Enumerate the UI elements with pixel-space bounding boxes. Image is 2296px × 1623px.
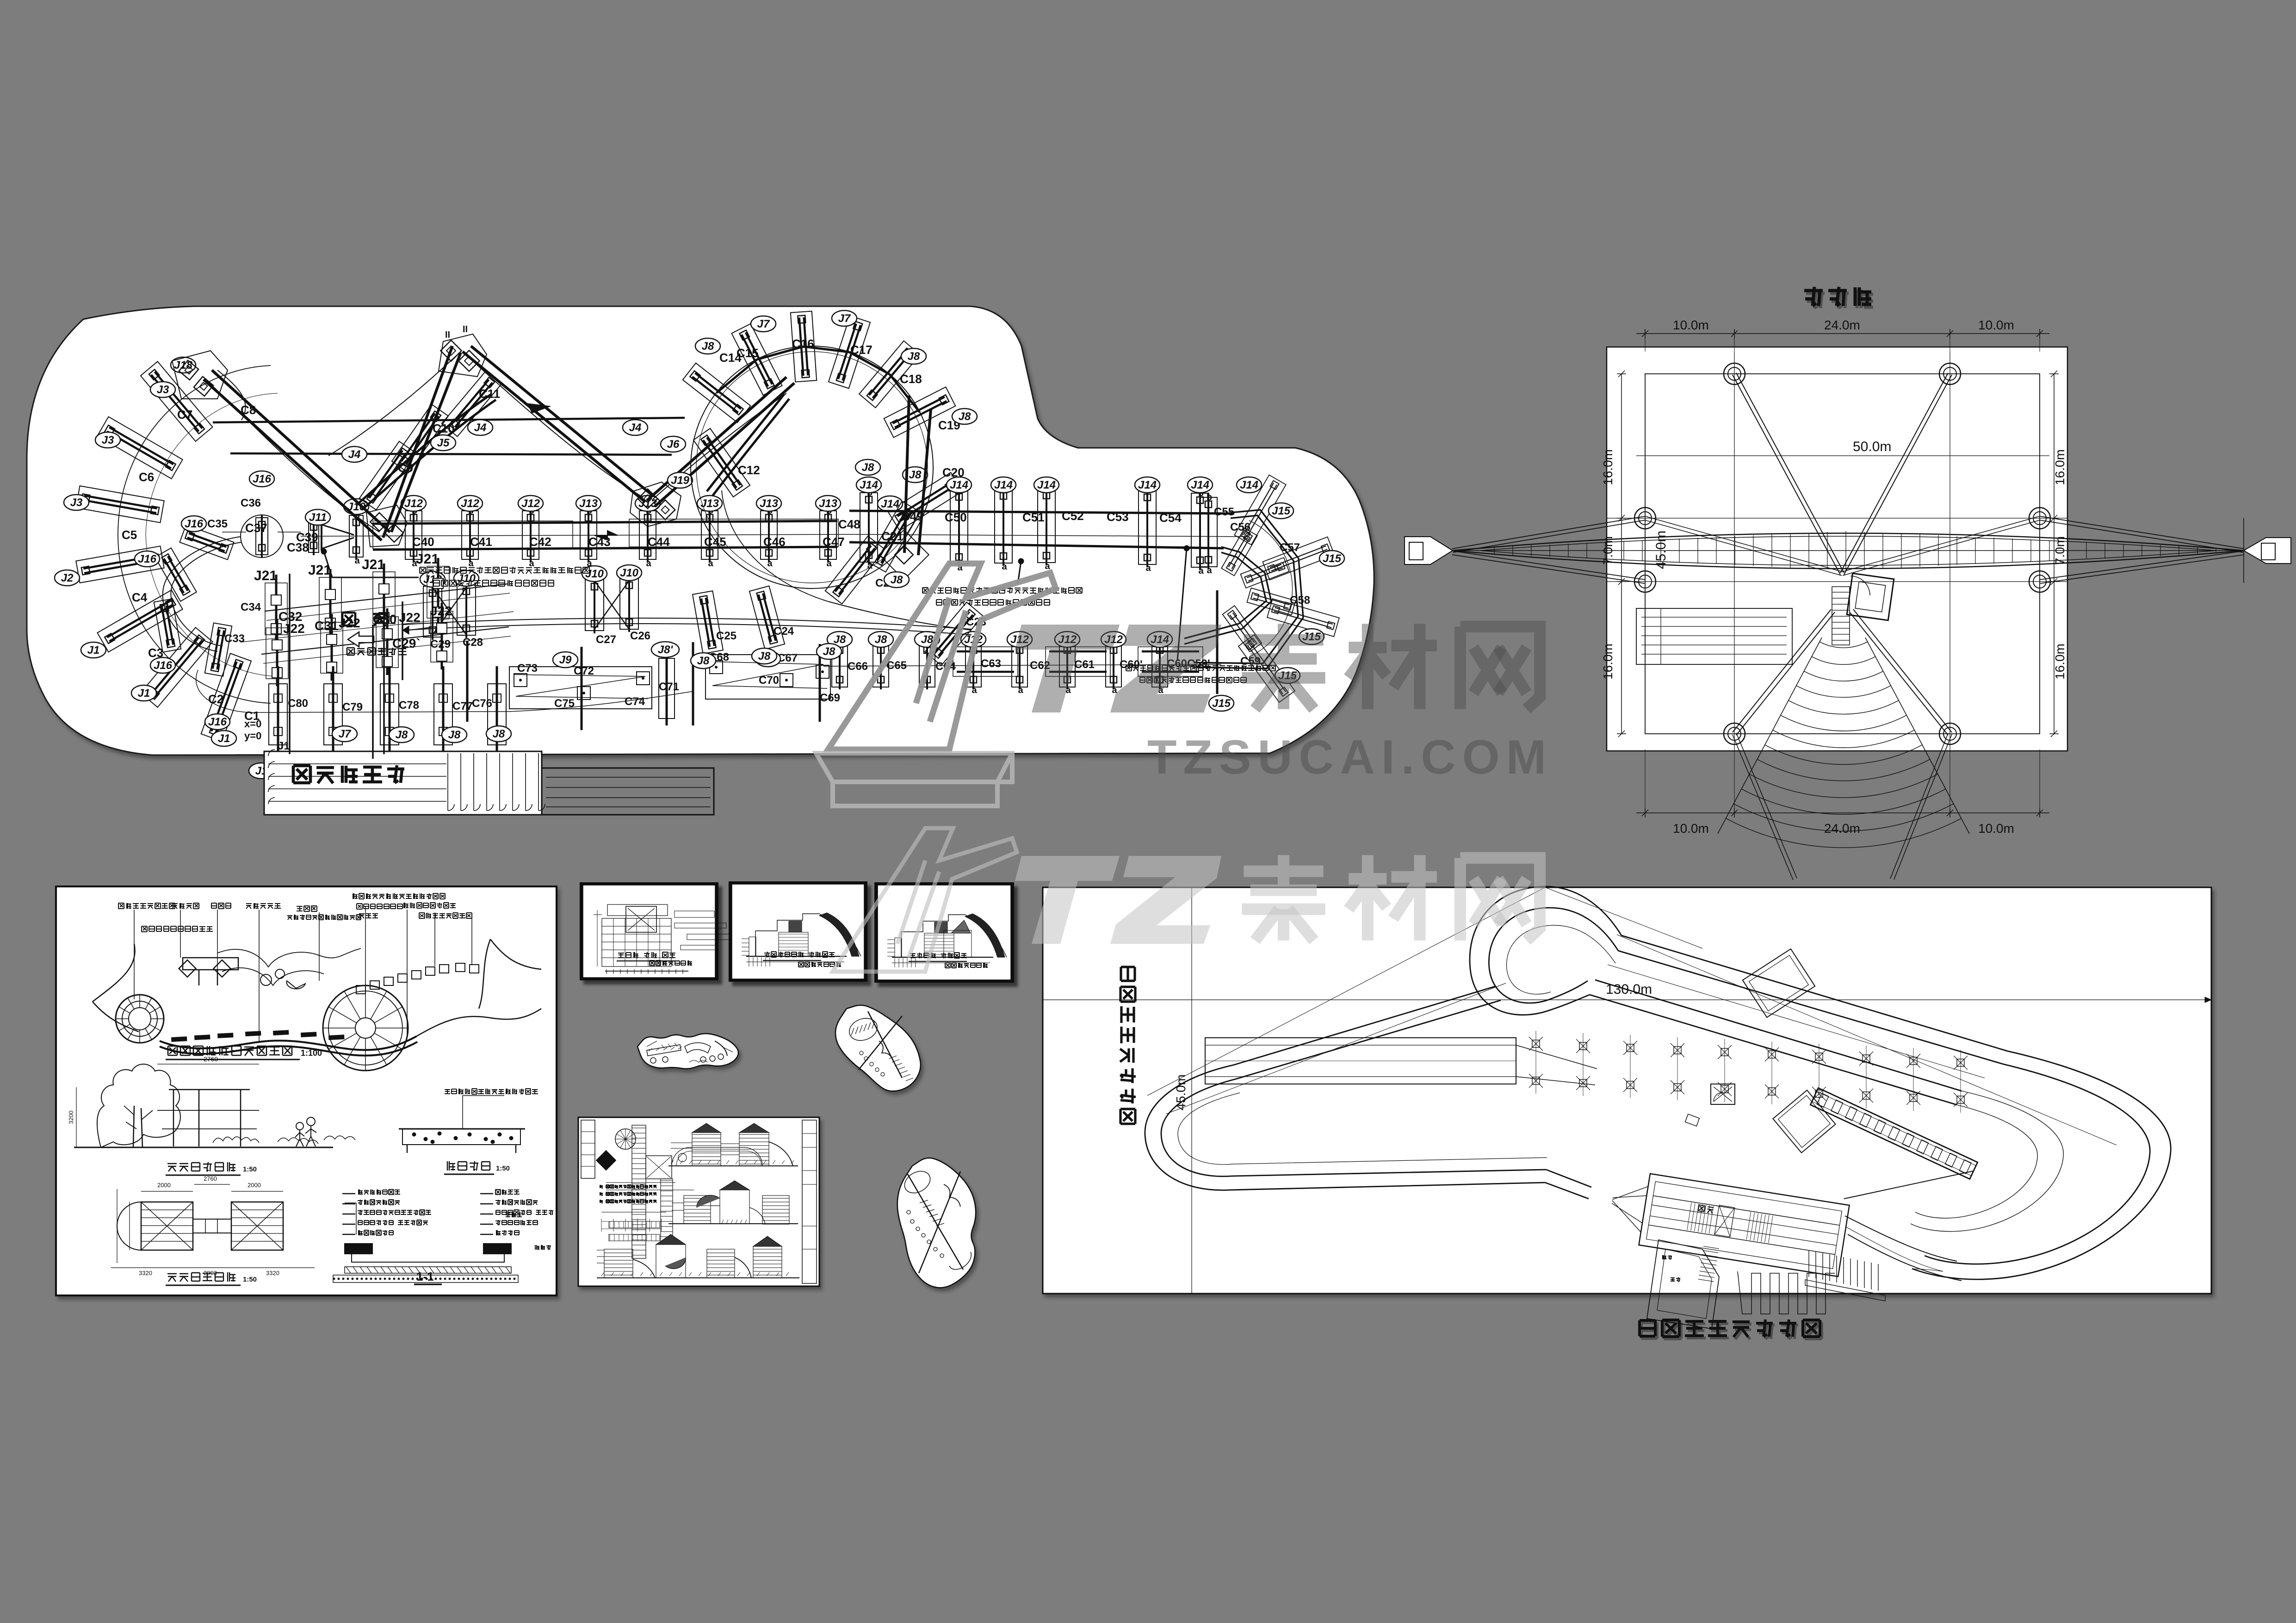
svg-text:J8: J8 (862, 461, 874, 474)
svg-text:C6: C6 (139, 470, 154, 484)
svg-text:J8: J8 (697, 655, 710, 667)
svg-text:J8: J8 (891, 574, 903, 586)
svg-text:16.0m: 16.0m (2053, 644, 2067, 680)
svg-text:J10: J10 (620, 567, 639, 579)
svg-text:C52: C52 (1062, 509, 1084, 523)
svg-text:J14: J14 (950, 479, 968, 491)
svg-text:C31: C31 (315, 619, 338, 633)
svg-text:C56: C56 (1230, 521, 1250, 533)
svg-text:J19: J19 (671, 474, 690, 487)
svg-text:2760: 2760 (204, 1055, 218, 1063)
svg-text:J8: J8 (909, 469, 922, 481)
svg-text:b: b (1207, 492, 1212, 502)
svg-text:J4: J4 (474, 421, 487, 434)
svg-text:10.0m: 10.0m (1673, 318, 1709, 332)
svg-text:16.0m: 16.0m (2053, 449, 2067, 485)
svg-text:C47: C47 (823, 535, 845, 549)
svg-text:C36: C36 (241, 497, 261, 509)
svg-text:C35: C35 (207, 518, 228, 530)
svg-text:II: II (463, 324, 468, 335)
svg-text:J8: J8 (875, 633, 887, 646)
svg-text:J12: J12 (461, 497, 480, 510)
svg-text:C63: C63 (981, 657, 1001, 670)
svg-text:C58: C58 (1290, 594, 1310, 607)
svg-text:C40: C40 (412, 535, 434, 549)
svg-text:a: a (1002, 562, 1007, 572)
svg-text:C79: C79 (342, 701, 363, 713)
svg-text:C27: C27 (596, 633, 616, 646)
svg-text:C44: C44 (648, 535, 670, 549)
svg-text:J12: J12 (521, 497, 540, 510)
svg-text:a: a (1018, 685, 1023, 695)
svg-text:C9: C9 (398, 461, 413, 475)
svg-text:a: a (972, 685, 977, 695)
svg-text:C69: C69 (820, 692, 840, 704)
svg-text:C76: C76 (472, 697, 492, 710)
svg-text:C54: C54 (1159, 511, 1182, 525)
svg-text:C16: C16 (792, 337, 814, 351)
svg-text:C51: C51 (1022, 510, 1045, 524)
svg-text:J3: J3 (70, 496, 83, 509)
svg-text:J12: J12 (404, 497, 423, 510)
svg-text:10.0m: 10.0m (1978, 821, 2014, 836)
svg-text:J8: J8 (702, 340, 714, 353)
svg-text:10.0m: 10.0m (1673, 821, 1709, 836)
svg-text:J14: J14 (881, 498, 899, 510)
svg-text:1:50: 1:50 (243, 1165, 257, 1173)
svg-text:J16: J16 (138, 553, 157, 565)
svg-text:16.0m: 16.0m (1601, 449, 1615, 485)
svg-text:C28: C28 (463, 636, 483, 649)
svg-text:10.0m: 10.0m (1978, 318, 2014, 332)
svg-text:C33: C33 (224, 632, 245, 645)
svg-text:1-1: 1-1 (416, 1270, 434, 1283)
svg-text:a: a (468, 558, 474, 569)
svg-text:a: a (529, 558, 534, 569)
svg-text:J16: J16 (154, 659, 173, 672)
svg-text:C60': C60' (1120, 658, 1143, 671)
svg-text:C2: C2 (208, 692, 223, 706)
svg-text:C26: C26 (630, 630, 650, 642)
svg-text:J14: J14 (1037, 479, 1056, 491)
svg-text:II: II (445, 330, 450, 340)
svg-text:J22: J22 (430, 604, 452, 618)
svg-text:a: a (1145, 563, 1151, 573)
svg-text:C18: C18 (900, 372, 922, 386)
svg-text:C15: C15 (736, 346, 759, 360)
svg-text:C70: C70 (759, 674, 779, 687)
svg-text:C53: C53 (1107, 510, 1129, 524)
svg-text:J8': J8' (658, 644, 674, 656)
svg-text:24.0m: 24.0m (1824, 318, 1860, 332)
svg-text:J16: J16 (253, 473, 272, 485)
svg-text:J14: J14 (994, 479, 1013, 491)
svg-text:3320: 3320 (266, 1270, 279, 1276)
svg-text:1:100: 1:100 (301, 1048, 322, 1058)
svg-text:C50: C50 (945, 510, 967, 524)
svg-text:C41: C41 (470, 535, 492, 549)
svg-text:C46: C46 (763, 535, 786, 549)
svg-text:C57: C57 (1280, 541, 1300, 554)
svg-text:a: a (1198, 566, 1204, 576)
svg-text:J9: J9 (559, 654, 572, 666)
svg-text:J11: J11 (309, 511, 327, 524)
svg-text:J7: J7 (838, 312, 851, 325)
svg-text:J8: J8 (493, 728, 505, 740)
svg-text:C17: C17 (850, 343, 873, 357)
svg-text:J15: J15 (1323, 552, 1342, 565)
svg-text:J8: J8 (908, 350, 920, 363)
svg-text:J5: J5 (437, 437, 450, 449)
svg-text:a: a (646, 558, 651, 569)
svg-text:C65: C65 (886, 659, 907, 672)
svg-text:16.0m: 16.0m (1601, 644, 1615, 680)
svg-text:3200: 3200 (68, 1111, 74, 1124)
svg-text:J8: J8 (959, 410, 971, 423)
svg-text:J14: J14 (860, 479, 878, 491)
svg-text:C5: C5 (122, 528, 137, 542)
svg-text:J8: J8 (758, 650, 771, 663)
svg-text:a: a (354, 556, 360, 566)
svg-text:J7: J7 (757, 318, 770, 330)
svg-text:J1: J1 (138, 687, 150, 700)
svg-text:C71: C71 (659, 681, 679, 693)
svg-text:a: a (767, 558, 773, 569)
svg-text:C34: C34 (241, 601, 261, 613)
svg-text:J13: J13 (700, 497, 719, 510)
svg-text:45.0m: 45.0m (1174, 1074, 1188, 1110)
svg-text:J14: J14 (1240, 479, 1258, 491)
svg-text:1:50: 1:50 (243, 1276, 257, 1283)
svg-text:J1: J1 (87, 644, 100, 657)
svg-text:J4: J4 (629, 421, 642, 434)
svg-text:C77: C77 (452, 700, 473, 712)
svg-text:1:50: 1:50 (496, 1165, 510, 1172)
svg-text:a: a (708, 558, 713, 569)
svg-text:C66: C66 (848, 660, 868, 673)
svg-text:a: a (1207, 565, 1212, 576)
svg-text:J15: J15 (1212, 697, 1231, 710)
svg-text:J21: J21 (416, 551, 439, 567)
svg-text:C61: C61 (1074, 658, 1095, 671)
svg-text:J13: J13 (819, 497, 838, 510)
svg-text:3320: 3320 (139, 1270, 152, 1276)
svg-text:C29`: C29` (392, 636, 421, 650)
svg-text:a: a (826, 558, 832, 569)
svg-text:x=0: x=0 (244, 718, 261, 730)
svg-text:J8: J8 (823, 645, 835, 658)
svg-text:TZSUCAI.COM: TZSUCAI.COM (1147, 731, 1553, 784)
svg-text:C80: C80 (288, 697, 308, 710)
svg-text:J13: J13 (760, 497, 779, 510)
svg-text:J16: J16 (208, 716, 227, 728)
svg-text:J10: J10 (585, 568, 604, 580)
svg-text:J21: J21 (254, 568, 277, 583)
svg-text:C72: C72 (574, 665, 594, 677)
svg-text:C11: C11 (479, 387, 500, 401)
svg-text:J3: J3 (157, 384, 169, 396)
svg-text:50.0m: 50.0m (1853, 439, 1891, 454)
svg-text:J16: J16 (185, 518, 204, 530)
svg-text:J1: J1 (218, 732, 230, 745)
svg-text:C74: C74 (625, 695, 645, 708)
svg-text:J7: J7 (339, 728, 352, 740)
svg-text:J15: J15 (1272, 505, 1291, 517)
svg-text:C24: C24 (774, 625, 794, 638)
svg-text:C7: C7 (177, 408, 192, 421)
svg-text:J8: J8 (396, 729, 408, 741)
svg-text:C12: C12 (738, 463, 760, 477)
svg-text:2760: 2760 (204, 1175, 217, 1182)
svg-text:2000: 2000 (248, 1182, 261, 1189)
svg-text:C55: C55 (1214, 506, 1234, 518)
svg-text:2000: 2000 (157, 1182, 171, 1189)
svg-text:J8: J8 (448, 729, 461, 741)
svg-text:J4: J4 (348, 448, 361, 461)
svg-text:C29: C29 (430, 638, 451, 650)
svg-text:C45: C45 (704, 535, 726, 549)
svg-text:J22: J22 (283, 621, 305, 636)
svg-text:24.0m: 24.0m (1824, 821, 1860, 836)
svg-text:C8: C8 (241, 403, 256, 417)
svg-text:J2: J2 (61, 572, 74, 584)
svg-text:J1: J1 (278, 740, 290, 752)
svg-text:J8: J8 (834, 633, 846, 646)
svg-text:y=0: y=0 (244, 730, 261, 742)
svg-text:C42: C42 (529, 535, 551, 549)
svg-text:C78: C78 (399, 699, 419, 712)
svg-text:C73: C73 (517, 662, 538, 675)
svg-text:J21: J21 (362, 557, 385, 572)
svg-text:J14: J14 (1191, 479, 1209, 491)
svg-text:C48: C48 (838, 517, 860, 531)
svg-text:J6: J6 (667, 438, 680, 451)
svg-text:J3: J3 (102, 434, 114, 446)
svg-text:C10: C10 (433, 421, 455, 435)
svg-text:J13: J13 (579, 497, 598, 510)
svg-text:C4: C4 (132, 590, 148, 604)
svg-text:J14: J14 (1138, 479, 1157, 491)
svg-text:C25: C25 (716, 630, 736, 642)
